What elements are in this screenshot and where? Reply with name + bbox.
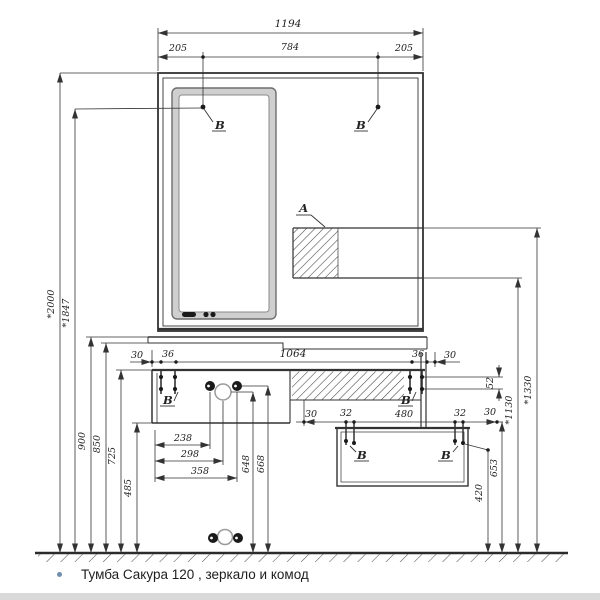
dim-dresser-30l: 30	[305, 409, 317, 420]
dim-205l-label: 205	[168, 43, 187, 54]
dim-1847-label: *1847	[61, 298, 72, 328]
dim-358-label: 358	[191, 466, 209, 477]
dim-1330-label: *1330	[523, 376, 534, 405]
dim-dresser-32r: 32	[454, 408, 466, 419]
dim-485	[132, 423, 152, 553]
caption-row: Тумба Сакура 120 , зеркало и комод	[57, 567, 309, 582]
dim-dresser-30r: 30	[484, 407, 496, 418]
dim-784-label: 784	[281, 42, 299, 53]
dim-2000-label: *2000	[46, 290, 57, 319]
dim-725-label: 725	[107, 447, 118, 465]
technical-drawing: В В 52 А	[0, 0, 600, 600]
dim-vanity-36l: 36	[162, 349, 174, 360]
callout-b-mirror-left: В	[214, 118, 225, 132]
dim-52-label: 52	[485, 377, 496, 389]
bullet-icon	[57, 572, 62, 577]
dim-vanity-1064: 1064	[280, 348, 307, 360]
dim-850-label: 850	[92, 435, 103, 453]
callout-a-shelf: А	[298, 201, 308, 215]
floor-plumbing-points	[208, 530, 243, 545]
callout-b-vanity-right: В	[400, 393, 411, 407]
dim-725	[116, 370, 152, 553]
shelf-detail-a	[293, 215, 423, 278]
basin-section-hatch	[292, 372, 404, 400]
callout-b-dresser-left: В	[356, 448, 367, 462]
dim-dresser-480: 480	[394, 409, 413, 420]
drawing-canvas: В В 52 А	[0, 0, 600, 562]
dim-485-label: 485	[123, 479, 134, 498]
vanity-cabinet	[152, 352, 426, 428]
handle-icon	[182, 312, 196, 317]
dim-vanity-30r: 30	[444, 350, 456, 361]
dim-900-label: 900	[77, 432, 88, 450]
plumbing-points	[205, 381, 242, 400]
dim-653-label: 653	[489, 459, 500, 477]
callout-b-dresser-right: В	[440, 448, 451, 462]
callout-b-vanity-left: В	[162, 393, 173, 407]
supply-circle-right	[232, 381, 242, 391]
drain-circle	[215, 384, 231, 400]
caption-text: Тумба Сакура 120 , зеркало и комод	[81, 567, 309, 582]
shelf-hatch	[293, 228, 338, 278]
floor-line	[35, 553, 568, 562]
dim-vanity-30l: 30	[131, 350, 143, 361]
dim-1130-label: *1130	[504, 396, 515, 425]
dim-vanity-36r: 36	[412, 349, 424, 360]
dim-668-label: 668	[256, 455, 267, 473]
dim-238-label: 238	[173, 433, 192, 444]
dim-1194-label: 1194	[275, 18, 302, 30]
dim-dresser-32l: 32	[340, 408, 352, 419]
dim-420-label: 420	[474, 484, 485, 503]
dim-648-label: 648	[241, 455, 252, 473]
supply-circle-left	[205, 381, 215, 391]
bottom-edge-strip	[0, 593, 600, 600]
dim-205r-label: 205	[394, 43, 413, 54]
dim-298-label: 298	[180, 449, 199, 460]
callout-b-mirror-right: В	[355, 118, 366, 132]
